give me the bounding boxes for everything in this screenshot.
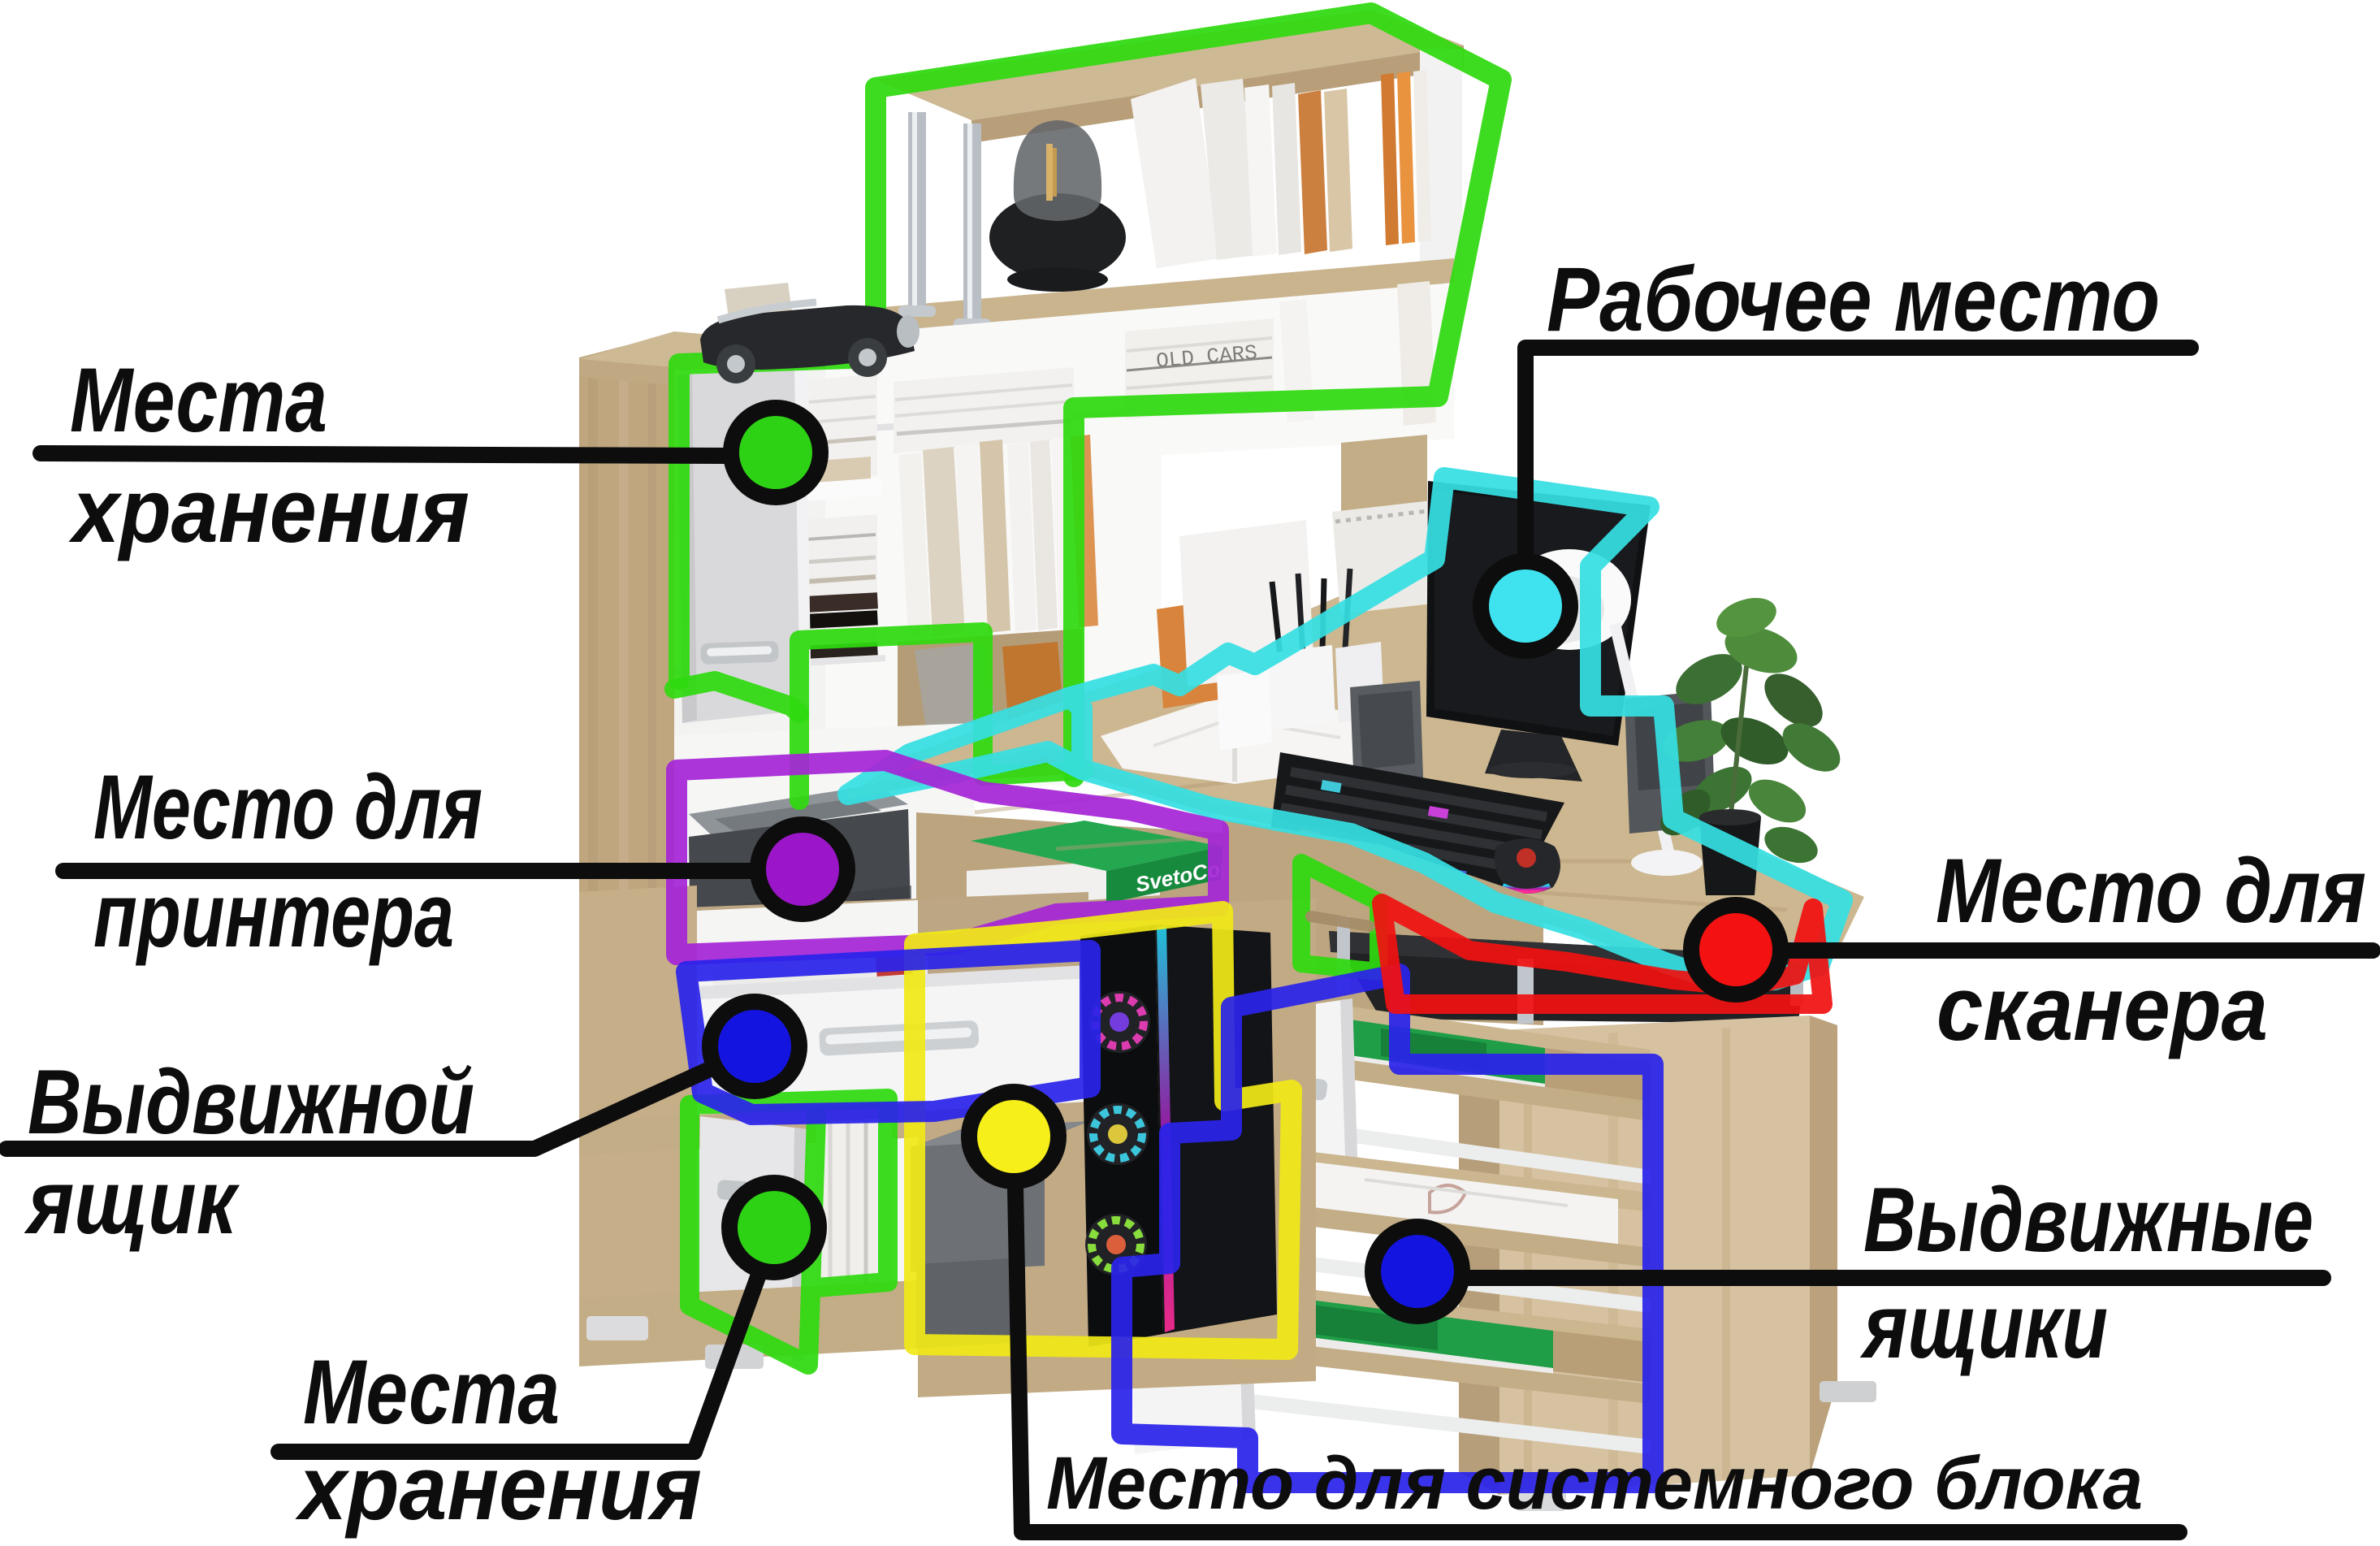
svg-text:Выдвижной: Выдвижной	[28, 1051, 474, 1153]
svg-text:принтера: принтера	[93, 864, 454, 966]
svg-text:Рабочее место: Рабочее место	[1547, 249, 2160, 350]
svg-text:хранения: хранения	[295, 1437, 702, 1539]
svg-text:Место для: Место для	[1936, 840, 2366, 942]
svg-text:Место для системного блока: Место для системного блока	[1046, 1442, 2143, 1525]
svg-text:сканера: сканера	[1936, 958, 2268, 1059]
svg-text:ящик: ящик	[24, 1151, 240, 1253]
svg-text:Места: Места	[303, 1341, 560, 1443]
svg-text:Место для: Место для	[93, 756, 482, 858]
svg-text:хранения: хранения	[68, 460, 470, 561]
svg-text:Выдвижные: Выдвижные	[1863, 1169, 2313, 1271]
svg-text:Места: Места	[70, 349, 327, 451]
svg-text:ящики: ящики	[1859, 1275, 2108, 1377]
